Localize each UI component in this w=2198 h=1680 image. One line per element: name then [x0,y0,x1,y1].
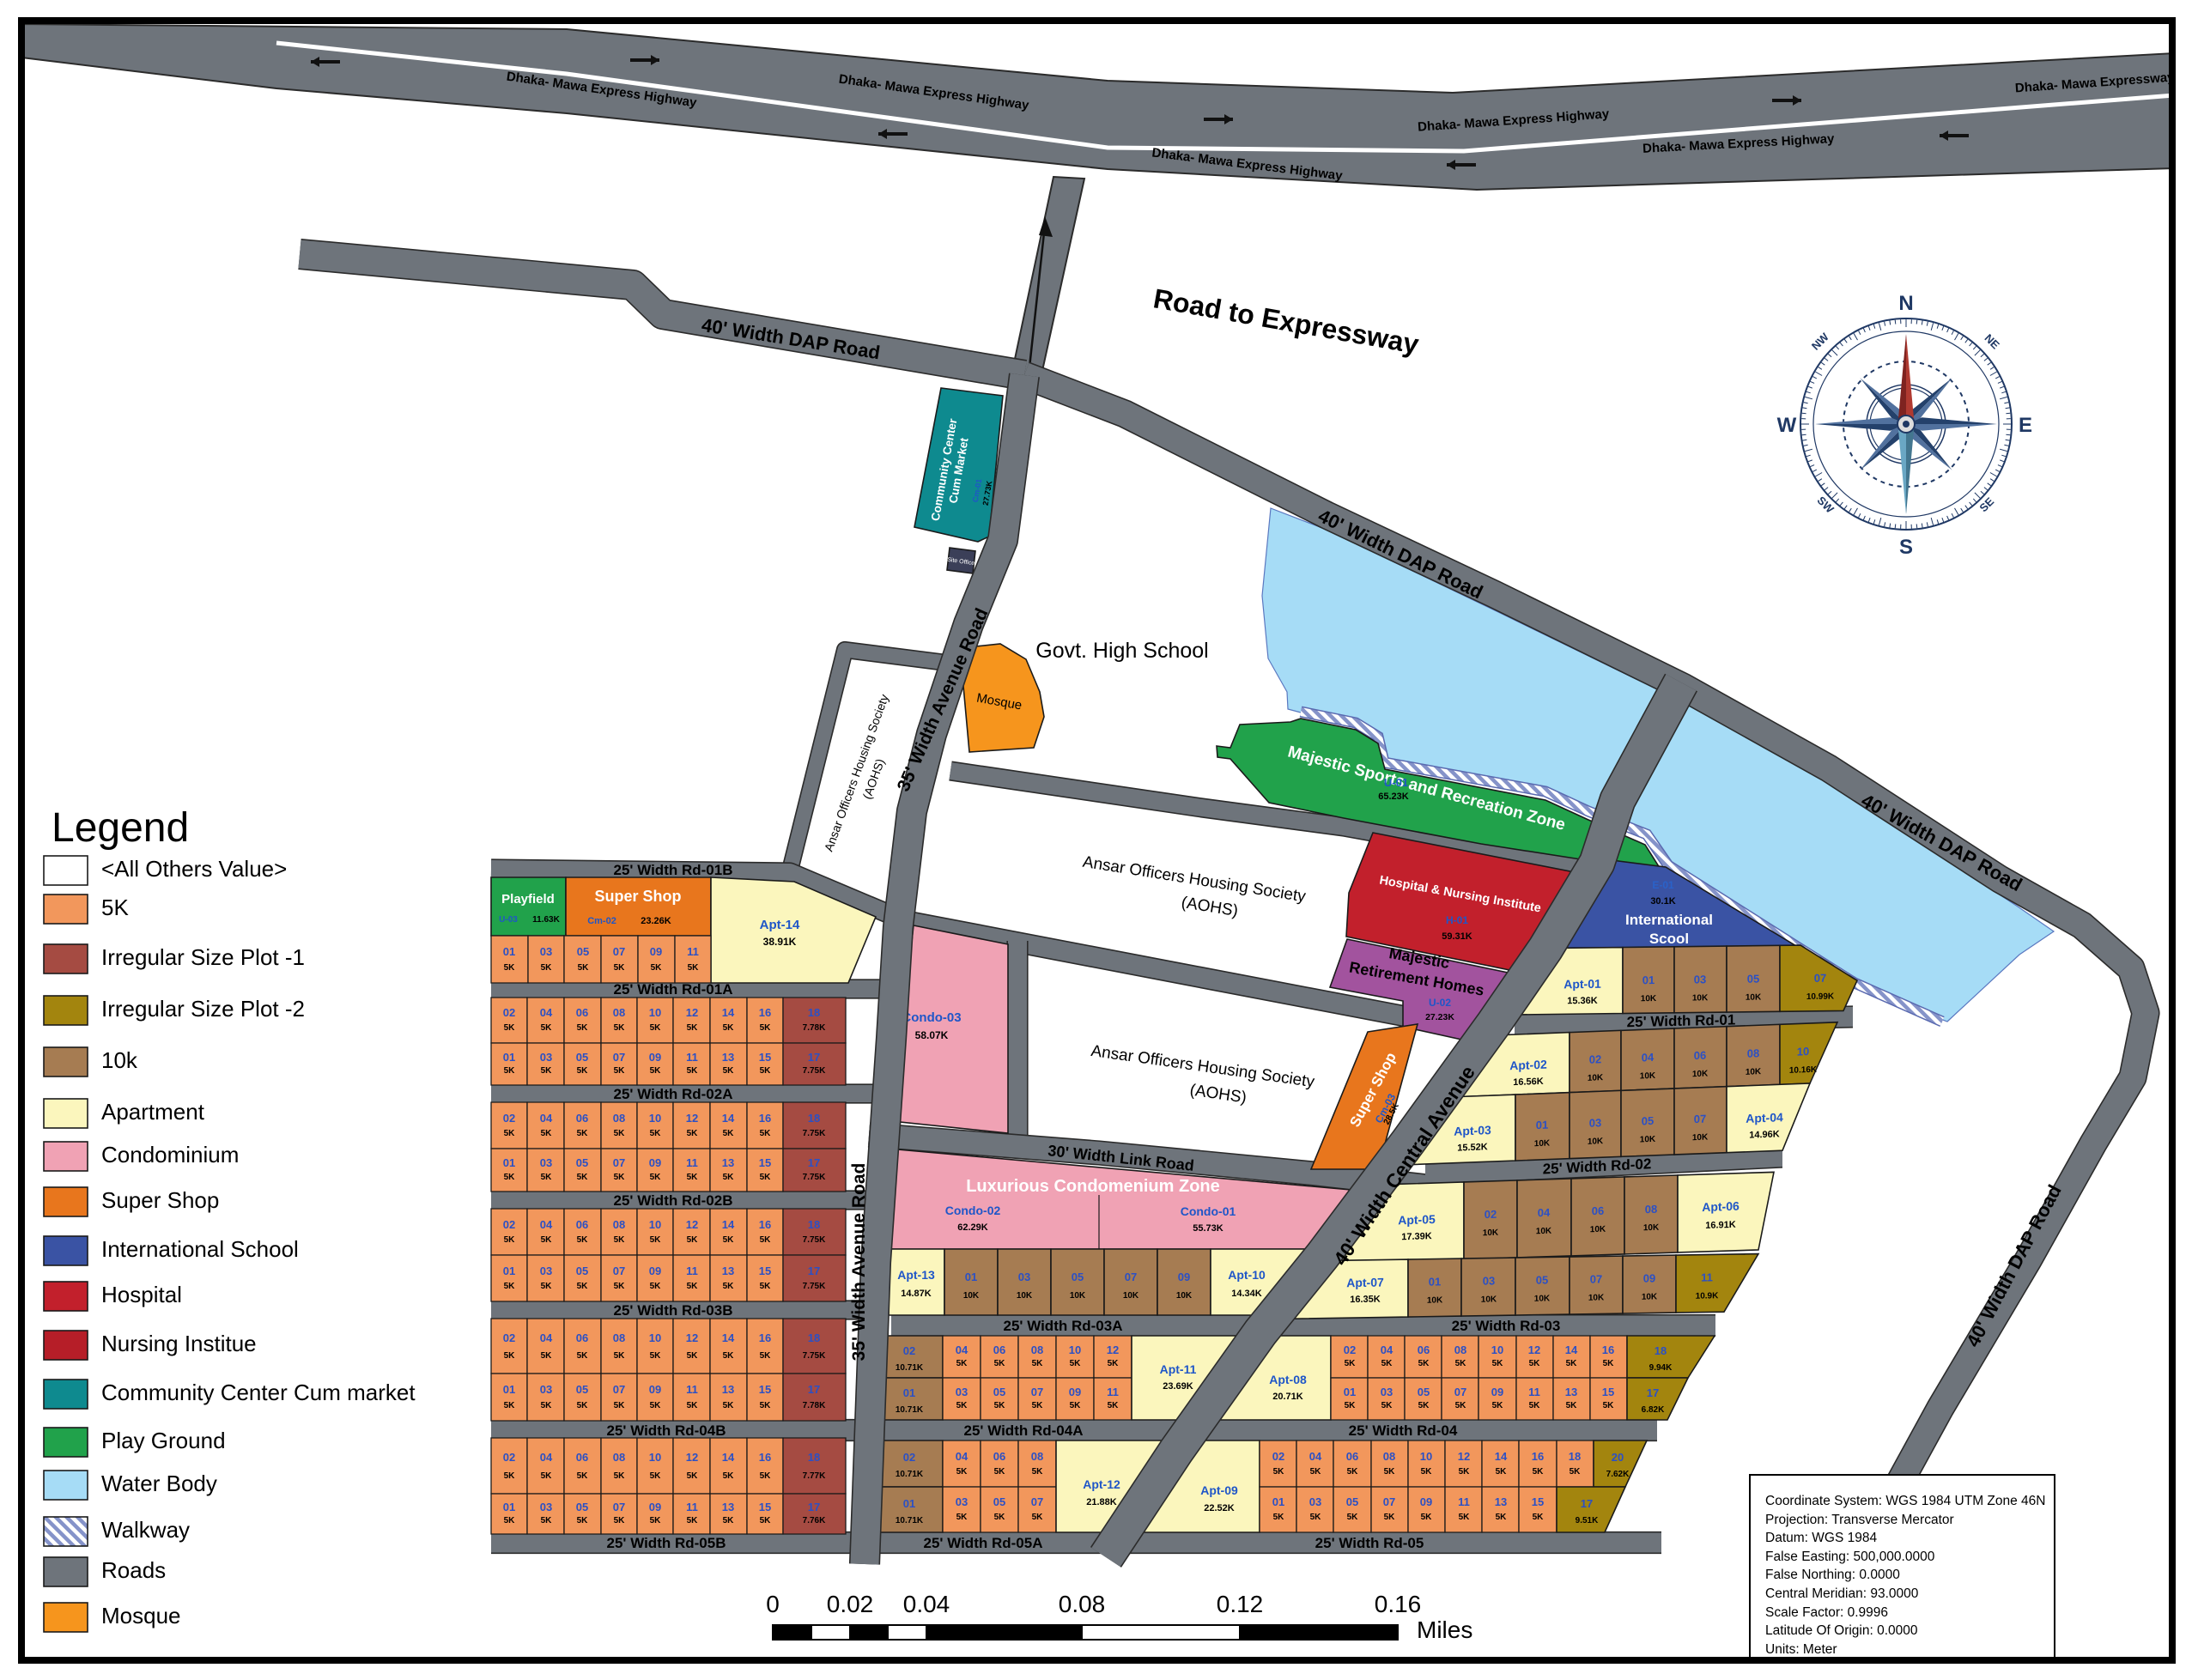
svg-text:International School: International School [101,1236,299,1262]
svg-text:5K: 5K [723,1282,735,1291]
svg-text:5K: 5K [650,1235,662,1245]
svg-text:25' Width Rd-05B: 25' Width Rd-05B [607,1535,726,1551]
svg-text:04: 04 [540,1331,553,1344]
svg-text:14: 14 [722,1331,735,1344]
svg-text:10.71K: 10.71K [896,1405,924,1415]
svg-text:20: 20 [1612,1451,1624,1464]
svg-text:23.26K: 23.26K [641,916,671,926]
svg-text:07: 07 [1454,1386,1466,1398]
svg-text:7.75K: 7.75K [803,1235,826,1245]
svg-text:5K: 5K [723,1351,735,1361]
svg-text:09: 09 [649,1501,661,1513]
svg-text:25' Width Rd-03A: 25' Width Rd-03A [1004,1318,1123,1334]
svg-text:5K: 5K [504,1351,516,1361]
svg-text:10: 10 [1491,1343,1503,1356]
svg-text:5K: 5K [1459,1467,1471,1477]
svg-text:01: 01 [503,1501,515,1513]
svg-text:02: 02 [1272,1450,1284,1463]
svg-text:5K: 5K [541,1282,553,1291]
svg-text:02: 02 [1485,1208,1497,1221]
svg-text:Apartment: Apartment [101,1099,205,1125]
svg-text:5K: 5K [723,1235,735,1245]
svg-text:05: 05 [1346,1495,1358,1508]
svg-text:08: 08 [613,1112,625,1125]
svg-text:09: 09 [1491,1386,1503,1398]
svg-text:5K: 5K [687,1351,699,1361]
svg-text:62.29K: 62.29K [957,1222,988,1233]
svg-text:14.34K: 14.34K [1231,1289,1262,1299]
svg-text:5K: 5K [504,1066,516,1076]
svg-text:7.78K: 7.78K [803,1401,826,1410]
svg-text:5K: 5K [687,1235,699,1245]
svg-text:5K: 5K [1273,1513,1285,1522]
svg-text:E-01: E-01 [1652,879,1674,891]
svg-text:Luxurious Condomenium Zone: Luxurious Condomenium Zone [966,1177,1220,1196]
svg-text:14: 14 [722,1451,735,1464]
svg-text:5K: 5K [1529,1401,1541,1410]
svg-text:10: 10 [649,1006,661,1019]
svg-text:10K: 10K [1588,1293,1605,1302]
svg-text:02: 02 [903,1344,915,1357]
svg-text:W: W [1777,414,1797,437]
svg-text:06: 06 [576,1451,588,1464]
svg-text:Coordinate System: WGS 1984 UT: Coordinate System: WGS 1984 UTM Zone 46N [1765,1494,2046,1508]
svg-text:5K: 5K [1418,1401,1430,1410]
svg-text:08: 08 [1454,1343,1466,1356]
svg-text:08: 08 [613,1218,625,1231]
svg-text:07: 07 [1031,1386,1043,1398]
svg-text:12: 12 [686,1006,698,1019]
svg-text:7.75K: 7.75K [803,1066,826,1076]
svg-text:Govt. High School: Govt. High School [1035,639,1209,663]
svg-text:06: 06 [576,1218,588,1231]
svg-text:01: 01 [503,1265,515,1277]
svg-text:5K: 5K [541,963,553,973]
svg-text:04: 04 [540,1451,553,1464]
svg-text:17: 17 [808,1383,820,1396]
svg-text:03: 03 [956,1495,968,1508]
svg-text:01: 01 [503,945,515,958]
svg-text:5K: 5K [614,1282,626,1291]
svg-text:06: 06 [576,1006,588,1019]
svg-text:08: 08 [613,1006,625,1019]
svg-text:04: 04 [1642,1051,1655,1064]
svg-text:03: 03 [1589,1116,1601,1130]
svg-text:08: 08 [613,1451,625,1464]
svg-text:Apt-02: Apt-02 [1509,1058,1547,1073]
svg-text:5K: 5K [760,1401,772,1410]
svg-text:10K: 10K [1692,1132,1709,1143]
svg-text:10K: 10K [1534,1138,1551,1149]
svg-text:5K: 5K [1032,1513,1044,1522]
svg-text:13: 13 [1565,1386,1577,1398]
svg-text:Super Shop: Super Shop [594,888,681,905]
svg-text:Cm-02: Cm-02 [587,916,616,926]
svg-text:U-03: U-03 [499,915,518,925]
svg-text:10.16K: 10.16K [1789,1065,1818,1076]
svg-text:09: 09 [1420,1495,1432,1508]
svg-text:10.71K: 10.71K [896,1470,924,1479]
svg-text:5K: 5K [504,1235,516,1245]
svg-text:Legend: Legend [52,805,189,851]
svg-text:04: 04 [956,1343,968,1356]
svg-text:10K: 10K [1588,1073,1604,1083]
svg-text:5K: 5K [760,1173,772,1182]
svg-text:5K: 5K [723,1129,735,1138]
svg-text:E: E [2019,414,2032,437]
svg-text:21.88K: 21.88K [1086,1497,1117,1507]
svg-text:07: 07 [1694,1113,1706,1126]
svg-text:05: 05 [1072,1271,1084,1283]
svg-text:13: 13 [722,1501,734,1513]
svg-text:Roads: Roads [101,1557,166,1583]
svg-text:02: 02 [1344,1343,1356,1356]
svg-text:17: 17 [808,1501,820,1513]
svg-text:Apt-01: Apt-01 [1563,977,1601,992]
svg-text:5K: 5K [723,1173,735,1182]
svg-text:02: 02 [1589,1052,1601,1066]
svg-text:5K: 5K [577,1516,589,1525]
svg-text:11: 11 [1701,1271,1713,1283]
svg-text:25' Width Rd-04: 25' Width Rd-04 [1349,1422,1458,1439]
svg-text:30.1K: 30.1K [1650,896,1675,907]
svg-text:10: 10 [1797,1045,1809,1058]
svg-text:06: 06 [1592,1204,1604,1217]
svg-text:03: 03 [956,1386,968,1398]
svg-text:08: 08 [1031,1343,1043,1356]
svg-text:5K: 5K [1070,1359,1082,1368]
svg-text:16: 16 [759,1112,771,1125]
svg-text:5K: 5K [650,1023,662,1033]
svg-text:10: 10 [1420,1450,1432,1463]
svg-text:5K: 5K [504,1471,516,1481]
svg-text:12: 12 [1458,1450,1470,1463]
svg-text:False Northing: 0.0000: False Northing: 0.0000 [1765,1568,1900,1582]
svg-text:N: N [1898,292,1913,315]
svg-text:18: 18 [808,1006,820,1019]
svg-text:Condo-02: Condo-02 [945,1204,1001,1217]
svg-text:15.36K: 15.36K [1567,996,1598,1006]
svg-text:5K: 5K [101,895,129,920]
svg-text:5K: 5K [650,1401,662,1410]
svg-text:5K: 5K [723,1023,735,1033]
svg-text:12: 12 [1528,1343,1540,1356]
svg-text:11: 11 [686,1156,698,1169]
svg-text:Irregular Size Plot -1: Irregular Size Plot -1 [101,944,305,970]
svg-text:5K: 5K [1032,1359,1044,1368]
svg-text:07: 07 [613,1383,625,1396]
svg-text:7.78K: 7.78K [803,1023,826,1033]
svg-text:Irregular Size Plot -2: Irregular Size Plot -2 [101,996,305,1022]
svg-text:Water Body: Water Body [101,1471,217,1496]
svg-text:5K: 5K [1108,1359,1120,1368]
svg-text:25' Width Rd-01B: 25' Width Rd-01B [614,862,733,878]
svg-text:10K: 10K [1588,1137,1604,1147]
svg-text:Hospital: Hospital [101,1282,182,1307]
svg-text:Projection: Transverse Mercato: Projection: Transverse Mercator [1765,1513,1954,1527]
svg-text:5K: 5K [1070,1401,1082,1410]
svg-text:10K: 10K [1123,1291,1139,1301]
svg-text:07: 07 [613,1051,625,1064]
svg-text:5K: 5K [760,1516,772,1525]
svg-text:<All Others Value>: <All Others Value> [101,856,287,882]
svg-text:5K: 5K [1566,1359,1578,1368]
svg-text:0: 0 [766,1591,780,1617]
svg-text:9.51K: 9.51K [1576,1516,1599,1525]
svg-text:Apt-14: Apt-14 [760,918,800,932]
svg-text:13: 13 [1495,1495,1507,1508]
svg-text:5K: 5K [687,1282,699,1291]
svg-text:5K: 5K [687,1066,699,1076]
svg-text:14: 14 [722,1218,735,1231]
svg-text:15: 15 [1602,1386,1614,1398]
svg-text:5K: 5K [614,1023,626,1033]
svg-text:16: 16 [1602,1343,1614,1356]
svg-text:01: 01 [965,1271,977,1283]
svg-text:0.04: 0.04 [903,1591,950,1617]
svg-text:Units: Meter: Units: Meter [1765,1642,1837,1657]
svg-text:5K: 5K [504,963,516,973]
svg-text:10K: 10K [1017,1291,1033,1301]
svg-text:Playfield: Playfield [501,892,555,907]
svg-text:5K: 5K [1459,1513,1471,1522]
svg-text:03: 03 [540,945,552,958]
svg-text:5K: 5K [577,1066,589,1076]
svg-text:Condominium: Condominium [101,1142,239,1168]
svg-text:23.69K: 23.69K [1163,1381,1193,1392]
svg-text:5K: 5K [1273,1467,1285,1477]
svg-text:7.75K: 7.75K [803,1282,826,1291]
svg-text:5K: 5K [504,1129,516,1138]
svg-text:10K: 10K [1481,1295,1497,1304]
svg-text:5K: 5K [760,1023,772,1033]
svg-text:10: 10 [1069,1343,1081,1356]
svg-text:H-01: H-01 [1446,914,1468,926]
svg-text:Apt-08: Apt-08 [1269,1373,1307,1386]
svg-text:5K: 5K [760,1235,772,1245]
svg-text:10K: 10K [1534,1294,1551,1303]
svg-text:10.9K: 10.9K [1696,1291,1719,1301]
svg-text:09: 09 [649,1265,661,1277]
svg-text:10K: 10K [1176,1291,1193,1301]
svg-text:02: 02 [503,1451,515,1464]
svg-text:10: 10 [649,1331,661,1344]
svg-text:5K: 5K [1496,1513,1508,1522]
svg-text:16: 16 [1532,1450,1544,1463]
svg-text:5K: 5K [504,1023,516,1033]
svg-text:02: 02 [503,1218,515,1231]
svg-text:5K: 5K [541,1351,553,1361]
svg-text:16: 16 [759,1331,771,1344]
svg-text:18: 18 [808,1112,820,1125]
svg-text:04: 04 [1309,1450,1322,1463]
svg-text:5K: 5K [577,1351,589,1361]
svg-text:5K: 5K [504,1516,516,1525]
svg-text:5K: 5K [1108,1401,1120,1410]
svg-text:25' Width Rd-05: 25' Width Rd-05 [1315,1535,1424,1551]
svg-text:09: 09 [1069,1386,1081,1398]
svg-text:38.91K: 38.91K [763,936,797,948]
svg-text:05: 05 [576,1501,588,1513]
svg-text:16: 16 [759,1218,771,1231]
svg-text:11: 11 [686,1383,698,1396]
svg-text:5K: 5K [1455,1401,1467,1410]
svg-text:5K: 5K [1421,1467,1433,1477]
svg-text:16: 16 [759,1451,771,1464]
svg-text:17: 17 [1647,1386,1659,1399]
svg-text:03: 03 [540,1383,552,1396]
svg-text:01: 01 [1536,1119,1548,1132]
svg-text:01: 01 [903,1497,915,1510]
svg-text:5K: 5K [687,1401,699,1410]
svg-text:05: 05 [576,1051,588,1064]
svg-text:25' Width Rd-03B: 25' Width Rd-03B [614,1302,733,1319]
svg-text:05: 05 [576,1265,588,1277]
svg-text:5K: 5K [956,1467,968,1477]
svg-text:5K: 5K [614,1066,626,1076]
svg-text:03: 03 [1694,973,1706,986]
svg-text:55.73K: 55.73K [1193,1223,1223,1234]
svg-text:11.63K: 11.63K [532,915,560,925]
svg-text:Condo-01: Condo-01 [1181,1204,1236,1218]
svg-text:02: 02 [503,1006,515,1019]
svg-text:5K: 5K [614,1173,626,1182]
svg-text:08: 08 [1031,1450,1043,1463]
svg-text:10.99K: 10.99K [1806,992,1835,1002]
svg-text:01: 01 [1642,973,1655,986]
svg-text:5K: 5K [687,1516,699,1525]
svg-text:11: 11 [686,1265,698,1277]
svg-text:5K: 5K [541,1129,553,1138]
svg-text:5K: 5K [577,1023,589,1033]
svg-text:5K: 5K [577,1173,589,1182]
svg-text:False Easting: 500,000.0000: False Easting: 500,000.0000 [1765,1550,1935,1564]
svg-text:10k: 10k [101,1047,138,1073]
svg-text:15: 15 [759,1501,771,1513]
svg-text:5K: 5K [760,1129,772,1138]
svg-text:25' Width Rd-01A: 25' Width Rd-01A [614,981,733,998]
svg-text:Apt-13: Apt-13 [897,1268,935,1282]
svg-text:25' Width Rd-04A: 25' Width Rd-04A [964,1422,1084,1439]
svg-text:10K: 10K [1642,1292,1658,1301]
svg-text:06: 06 [993,1343,1005,1356]
svg-text:15: 15 [1532,1495,1544,1508]
svg-text:5K: 5K [723,1471,735,1481]
svg-text:01: 01 [503,1383,515,1396]
svg-text:10K: 10K [1643,1223,1660,1234]
svg-text:5K: 5K [650,1351,662,1361]
svg-text:58.07K: 58.07K [915,1029,949,1041]
svg-text:05: 05 [1418,1386,1430,1398]
svg-text:5K: 5K [1496,1467,1508,1477]
svg-text:07: 07 [1125,1271,1137,1283]
svg-text:0.08: 0.08 [1059,1591,1106,1617]
svg-text:12: 12 [686,1112,698,1125]
svg-text:14: 14 [722,1112,735,1125]
svg-text:5K: 5K [687,1173,699,1182]
svg-text:09: 09 [649,1051,661,1064]
svg-text:5K: 5K [760,1471,772,1481]
svg-text:04: 04 [540,1218,553,1231]
svg-text:Apt-03: Apt-03 [1454,1123,1491,1138]
svg-text:Super Shop: Super Shop [101,1187,219,1213]
svg-text:15: 15 [759,1383,771,1396]
svg-text:10K: 10K [1590,1225,1606,1235]
svg-text:08: 08 [1383,1450,1395,1463]
svg-text:10: 10 [649,1451,661,1464]
svg-text:12: 12 [686,1331,698,1344]
svg-text:07: 07 [613,1265,625,1277]
svg-text:13: 13 [722,1156,734,1169]
svg-text:10K: 10K [1427,1295,1443,1305]
svg-text:25' Width Rd-03: 25' Width Rd-03 [1452,1318,1561,1334]
svg-text:5K: 5K [577,1471,589,1481]
svg-text:5K: 5K [1345,1359,1357,1368]
svg-text:14: 14 [722,1006,735,1019]
svg-text:5K: 5K [578,963,590,973]
svg-text:06: 06 [1694,1049,1706,1063]
svg-text:5K: 5K [614,1516,626,1525]
svg-text:12: 12 [1107,1343,1119,1356]
svg-text:5K: 5K [994,1359,1006,1368]
svg-text:10: 10 [649,1112,661,1125]
svg-text:11: 11 [1458,1495,1470,1508]
svg-text:18: 18 [1569,1450,1581,1463]
svg-text:Apt-06: Apt-06 [1702,1199,1740,1214]
svg-text:5K: 5K [541,1516,553,1525]
svg-text:5K: 5K [541,1023,553,1033]
svg-text:05: 05 [1536,1273,1548,1286]
svg-text:06: 06 [993,1450,1005,1463]
svg-text:03: 03 [540,1501,552,1513]
svg-text:5K: 5K [504,1401,516,1410]
svg-text:5K: 5K [1603,1359,1615,1368]
svg-text:5K: 5K [614,1235,626,1245]
svg-text:59.31K: 59.31K [1442,931,1472,942]
svg-text:7.77K: 7.77K [803,1471,826,1481]
svg-text:5K: 5K [504,1173,516,1182]
svg-text:02: 02 [503,1112,515,1125]
svg-text:15.52K: 15.52K [1457,1142,1488,1153]
svg-text:International: International [1625,912,1713,928]
svg-text:U-02: U-02 [1429,997,1451,1009]
svg-text:Apt-12: Apt-12 [1083,1477,1120,1491]
svg-text:15: 15 [759,1051,771,1064]
svg-text:5K: 5K [760,1351,772,1361]
svg-text:5K: 5K [1381,1401,1393,1410]
svg-text:11: 11 [1107,1386,1119,1398]
svg-text:7.75K: 7.75K [803,1129,826,1138]
svg-text:22.52K: 22.52K [1204,1503,1235,1513]
svg-text:06: 06 [1418,1343,1430,1356]
svg-text:09: 09 [650,945,662,958]
svg-text:5K: 5K [1310,1513,1322,1522]
svg-text:5K: 5K [614,1471,626,1481]
svg-text:5K: 5K [1032,1401,1044,1410]
svg-text:5K: 5K [760,1066,772,1076]
svg-text:18: 18 [808,1331,820,1344]
svg-text:11: 11 [686,1051,698,1064]
svg-text:5K: 5K [688,963,700,973]
svg-text:14: 14 [1495,1450,1508,1463]
svg-text:0.12: 0.12 [1217,1591,1264,1617]
svg-text:5K: 5K [1570,1467,1582,1477]
svg-text:5K: 5K [650,1173,662,1182]
svg-text:Apt-07: Apt-07 [1346,1276,1384,1290]
svg-text:5K: 5K [650,1282,662,1291]
svg-text:27.23K: 27.23K [1425,1012,1454,1022]
svg-text:01: 01 [903,1386,915,1399]
